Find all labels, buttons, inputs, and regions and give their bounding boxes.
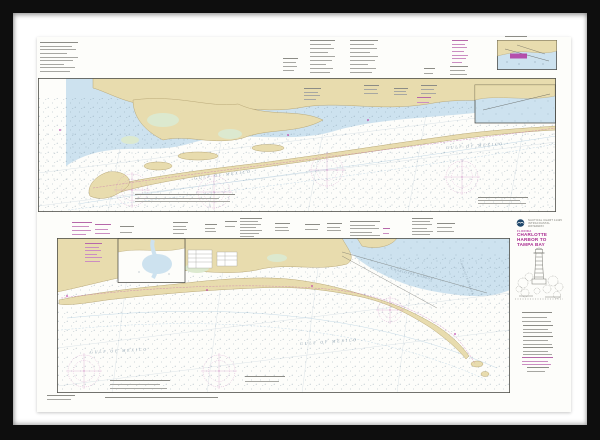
note-text-line	[394, 94, 407, 95]
note-text-line	[120, 226, 134, 227]
note-text-line	[225, 221, 237, 222]
note-text-line	[85, 247, 99, 248]
note-text-line	[245, 381, 279, 382]
note-text-line	[205, 228, 215, 229]
note-text-line	[450, 70, 465, 71]
note-text-line	[350, 235, 380, 236]
note-text-line	[275, 230, 289, 231]
note-text-line	[350, 72, 372, 73]
note-text-line	[505, 36, 527, 37]
chart-note-block	[522, 312, 552, 322]
note-text-line	[40, 71, 70, 72]
note-text-line	[40, 49, 76, 50]
note-text-line	[310, 68, 333, 69]
note-text-line	[421, 89, 434, 90]
note-text-line	[327, 223, 342, 224]
chart-note-block	[47, 395, 75, 400]
chart-strip-1-map: GULF OF MEXICO GULF OF MEXICO	[38, 78, 556, 212]
note-text-line	[240, 224, 261, 225]
note-text-line	[327, 227, 340, 228]
note-text-line	[350, 232, 372, 233]
note-text-line	[305, 224, 320, 225]
note-text-line	[450, 66, 468, 67]
note-text-line	[383, 228, 390, 229]
note-text-line	[364, 93, 378, 94]
note-text-line	[522, 357, 553, 358]
note-text-line	[173, 222, 188, 223]
chart-note-block	[523, 347, 553, 355]
note-text-line	[527, 371, 545, 372]
chart-note-block	[240, 218, 262, 237]
note-text-line	[437, 227, 452, 228]
chart-note-block	[110, 380, 170, 389]
note-text-line	[283, 62, 296, 63]
note-text-line	[304, 95, 320, 96]
note-text-line	[522, 312, 552, 313]
note-text-line	[135, 194, 235, 195]
chart-note-block	[283, 58, 298, 71]
note-text-line	[95, 233, 110, 234]
chart-note-block	[527, 367, 549, 372]
note-text-line	[450, 74, 467, 75]
note-text-line	[173, 233, 184, 234]
note-text-line	[225, 226, 235, 227]
note-text-line	[523, 340, 548, 341]
chart-note-block	[421, 85, 437, 94]
note-text-line	[310, 52, 328, 53]
lighthouse-sketch-icon	[513, 247, 565, 301]
note-text-line	[522, 364, 551, 365]
note-text-line	[350, 228, 379, 229]
note-text-line	[40, 46, 72, 47]
note-text-line	[452, 55, 468, 56]
caption-line-2: INTRACOASTAL WATERWAY	[528, 222, 564, 228]
note-text-line	[527, 367, 549, 368]
note-text-line	[47, 395, 75, 396]
chart-note-block	[305, 224, 320, 230]
note-text-line	[523, 351, 548, 352]
chart-note-block	[478, 197, 528, 204]
note-text-line	[120, 232, 132, 233]
note-text-line	[350, 68, 376, 69]
chart-note-block	[304, 88, 321, 100]
chart-note-block	[225, 221, 237, 227]
note-text-line	[245, 376, 285, 377]
chart-note-block-magenta	[522, 357, 553, 365]
note-text-line	[105, 397, 218, 398]
note-text-line	[304, 88, 321, 89]
chart-note-block	[523, 325, 553, 333]
note-text-line	[424, 73, 433, 74]
note-text-line	[40, 53, 67, 54]
chart-note-block-magenta	[85, 243, 102, 262]
chart-note-block	[350, 221, 380, 236]
chart-note-block	[245, 376, 285, 382]
note-text-line	[310, 64, 326, 65]
note-text-line	[310, 44, 331, 45]
note-text-line	[452, 62, 462, 63]
chart-note-block-magenta	[95, 224, 111, 234]
note-text-line	[240, 227, 256, 228]
chart-note-block	[135, 194, 235, 202]
note-text-line	[40, 42, 78, 43]
note-text-line	[275, 227, 288, 228]
note-text-line	[310, 60, 332, 61]
note-text-line	[310, 40, 335, 41]
note-text-line	[47, 399, 71, 400]
note-text-line	[72, 234, 86, 235]
note-text-line	[452, 51, 464, 52]
chart-note-block-magenta	[417, 97, 431, 103]
chart-strip-2-map: GULF OF MEXICO GULF OF MEXICO CHARLOTTE …	[57, 238, 510, 393]
inset-panel-strip2	[118, 239, 185, 283]
note-text-line	[437, 231, 454, 232]
chart-number-caption: NAUTICAL CHART 11425 INTRACOASTAL WATERW…	[528, 219, 564, 228]
note-text-line	[523, 336, 553, 337]
note-text-line	[110, 380, 170, 381]
note-text-line	[424, 68, 435, 69]
note-text-line	[95, 229, 108, 230]
note-text-line	[283, 58, 298, 59]
note-text-line	[522, 321, 551, 322]
note-text-line	[240, 221, 258, 222]
note-text-line	[412, 224, 432, 225]
note-text-line	[522, 317, 547, 318]
chart-note-block	[505, 36, 527, 39]
note-text-line	[412, 228, 427, 229]
note-text-line	[417, 102, 429, 103]
chart-note-block-magenta	[72, 222, 92, 235]
note-text-line	[350, 221, 380, 222]
note-text-line	[394, 91, 406, 92]
note-text-line	[72, 222, 92, 223]
note-text-line	[412, 234, 430, 235]
chart-note-block	[523, 336, 553, 345]
note-text-line	[523, 332, 552, 333]
note-text-line	[412, 218, 433, 219]
note-text-line	[283, 70, 294, 71]
note-text-line	[452, 47, 467, 48]
note-text-line	[85, 257, 102, 258]
note-text-line	[350, 44, 374, 45]
note-text-line	[327, 230, 341, 231]
note-text-line	[110, 384, 160, 385]
note-text-line	[275, 223, 290, 224]
note-text-line	[95, 224, 111, 225]
chart-note-block	[394, 88, 408, 95]
note-text-line	[173, 226, 186, 227]
note-text-line	[40, 64, 64, 65]
note-text-line	[478, 203, 526, 204]
chart-title: CHARLOTTE HARBOR TO TAMPA BAY	[517, 233, 557, 247]
note-text-line	[40, 60, 73, 61]
note-text-line	[40, 57, 78, 58]
note-text-line	[421, 85, 437, 86]
inset-panel-strip1	[475, 85, 556, 123]
chart-note-block	[450, 66, 468, 75]
chart-note-block	[310, 40, 335, 73]
note-text-line	[394, 88, 408, 89]
chart-note-block	[105, 397, 218, 399]
note-text-line	[350, 64, 368, 65]
chart-note-block	[120, 226, 134, 233]
note-text-line	[135, 198, 219, 199]
chart-note-block	[412, 218, 433, 235]
note-text-line	[110, 388, 167, 389]
note-text-line	[240, 236, 254, 237]
note-text-line	[412, 221, 430, 222]
chart-note-block	[437, 223, 455, 232]
chart-note-block	[275, 223, 290, 231]
note-text-line	[350, 48, 377, 49]
note-text-line	[522, 361, 548, 362]
note-text-line	[523, 347, 553, 348]
note-text-line	[523, 354, 552, 355]
note-text-line	[412, 231, 433, 232]
note-text-line	[40, 67, 75, 68]
chart-note-block	[364, 85, 379, 94]
noaa-logo-icon	[516, 219, 525, 227]
note-text-line	[417, 97, 431, 98]
note-text-line	[240, 218, 262, 219]
inset-map-top-right	[497, 40, 557, 70]
note-text-line	[85, 250, 101, 251]
note-text-line	[205, 231, 216, 232]
note-text-line	[304, 92, 318, 93]
note-text-line	[283, 66, 297, 67]
note-text-line	[85, 254, 97, 255]
chart-note-block	[40, 42, 78, 72]
note-text-line	[452, 44, 465, 45]
note-text-line	[523, 329, 548, 330]
note-text-line	[421, 93, 436, 94]
note-text-line	[173, 229, 187, 230]
note-text-line	[310, 56, 335, 57]
chart-note-block	[350, 40, 378, 73]
note-text-line	[350, 225, 375, 226]
note-text-line	[85, 243, 102, 244]
note-text-line	[205, 224, 217, 225]
chart-note-block-magenta	[452, 40, 468, 63]
note-text-line	[72, 226, 89, 227]
chart-note-block	[205, 224, 217, 232]
note-text-line	[350, 56, 378, 57]
chart-note-block	[173, 222, 188, 234]
note-text-line	[350, 52, 370, 53]
note-text-line	[364, 89, 377, 90]
chart-note-block	[424, 68, 435, 74]
note-text-line	[240, 230, 262, 231]
inset-highlight-rectangle	[510, 54, 527, 59]
chart-note-block-magenta	[383, 228, 390, 234]
note-text-line	[452, 58, 466, 59]
note-text-line	[523, 325, 553, 326]
note-text-line	[310, 48, 334, 49]
chart-note-block	[327, 223, 342, 231]
note-text-line	[85, 261, 100, 262]
note-text-line	[305, 229, 318, 230]
note-text-line	[478, 200, 520, 201]
note-text-line	[310, 72, 330, 73]
note-text-line	[437, 223, 455, 224]
framed-chart-photo: GULF OF MEXICO GULF OF MEXICO	[0, 0, 600, 440]
note-text-line	[72, 230, 91, 231]
note-text-line	[350, 60, 375, 61]
note-text-line	[240, 233, 259, 234]
note-text-line	[452, 40, 468, 41]
note-text-line	[350, 40, 378, 41]
note-text-line	[364, 85, 379, 86]
note-text-line	[135, 201, 230, 202]
note-text-line	[304, 99, 316, 100]
note-text-line	[383, 233, 389, 234]
note-text-line	[523, 344, 552, 345]
note-text-line	[478, 197, 528, 198]
